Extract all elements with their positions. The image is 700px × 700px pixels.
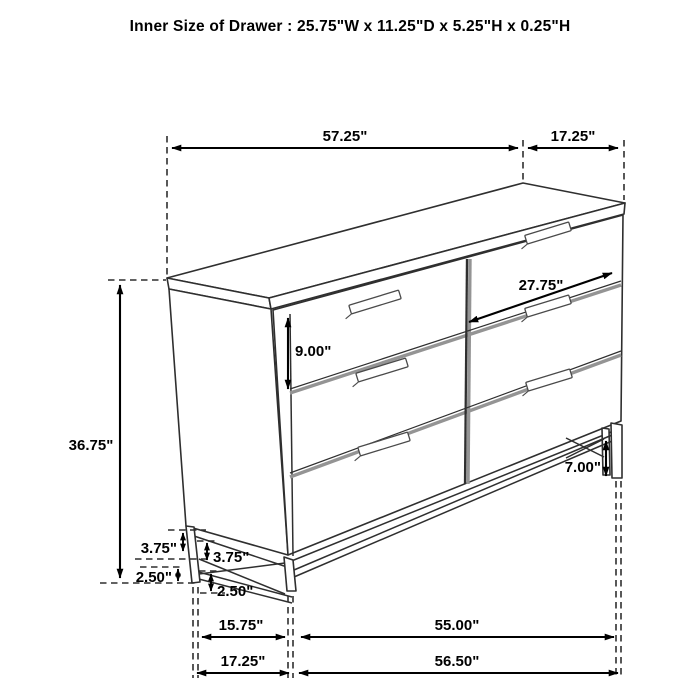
dim-overall-height: 36.75" [69, 285, 120, 578]
dim-footprint-side-outer-label: 17.25" [221, 653, 266, 670]
front-right-leg [611, 423, 622, 478]
dim-top-depth: 17.25" [528, 128, 618, 148]
dim-footprint-front-outer-label: 56.50" [435, 653, 480, 670]
dim-footprint-front-inner-label: 55.00" [435, 617, 480, 634]
dim-footprint-side-inner-label: 15.75" [219, 617, 264, 634]
dim-top-depth-label: 17.25" [551, 128, 596, 145]
dim-drawer-height-label: 9.00" [295, 343, 331, 360]
dim-base-side-lower: 2.50" [136, 569, 178, 586]
dim-footprint-side-outer: 17.25" [197, 653, 289, 673]
dimension-diagram: Inner Size of Drawer : 25.75"W x 11.25"D… [0, 0, 700, 700]
dim-base-front-lower-label: 2.50" [217, 583, 253, 600]
dim-top-width-label: 57.25" [323, 128, 368, 145]
dim-base-side-lower-label: 2.50" [136, 569, 172, 586]
dim-base-side-upper-label: 3.75" [141, 540, 177, 557]
dresser-dimension-drawing: 57.25" 17.25" 36.75" 27.75" 9.00" 7.00" [0, 0, 700, 700]
dim-top-width: 57.25" [172, 128, 518, 148]
dim-base-side-upper: 3.75" [141, 533, 183, 557]
front-left-leg [284, 557, 296, 591]
side-panel [169, 289, 288, 555]
dresser-drawing [167, 183, 625, 603]
dim-base-front-upper: 3.75" [207, 543, 249, 566]
dim-footprint-front-outer: 56.50" [299, 653, 618, 673]
dim-footprint-front-inner: 55.00" [301, 617, 614, 637]
dim-overall-height-label: 36.75" [69, 437, 114, 454]
back-left-leg [186, 526, 200, 583]
dim-footprint-side-inner: 15.75" [202, 617, 285, 637]
dim-base-front-upper-label: 3.75" [213, 549, 249, 566]
dim-drawer-width-label: 27.75" [519, 277, 564, 294]
dim-leg-height-label: 7.00" [565, 459, 601, 476]
